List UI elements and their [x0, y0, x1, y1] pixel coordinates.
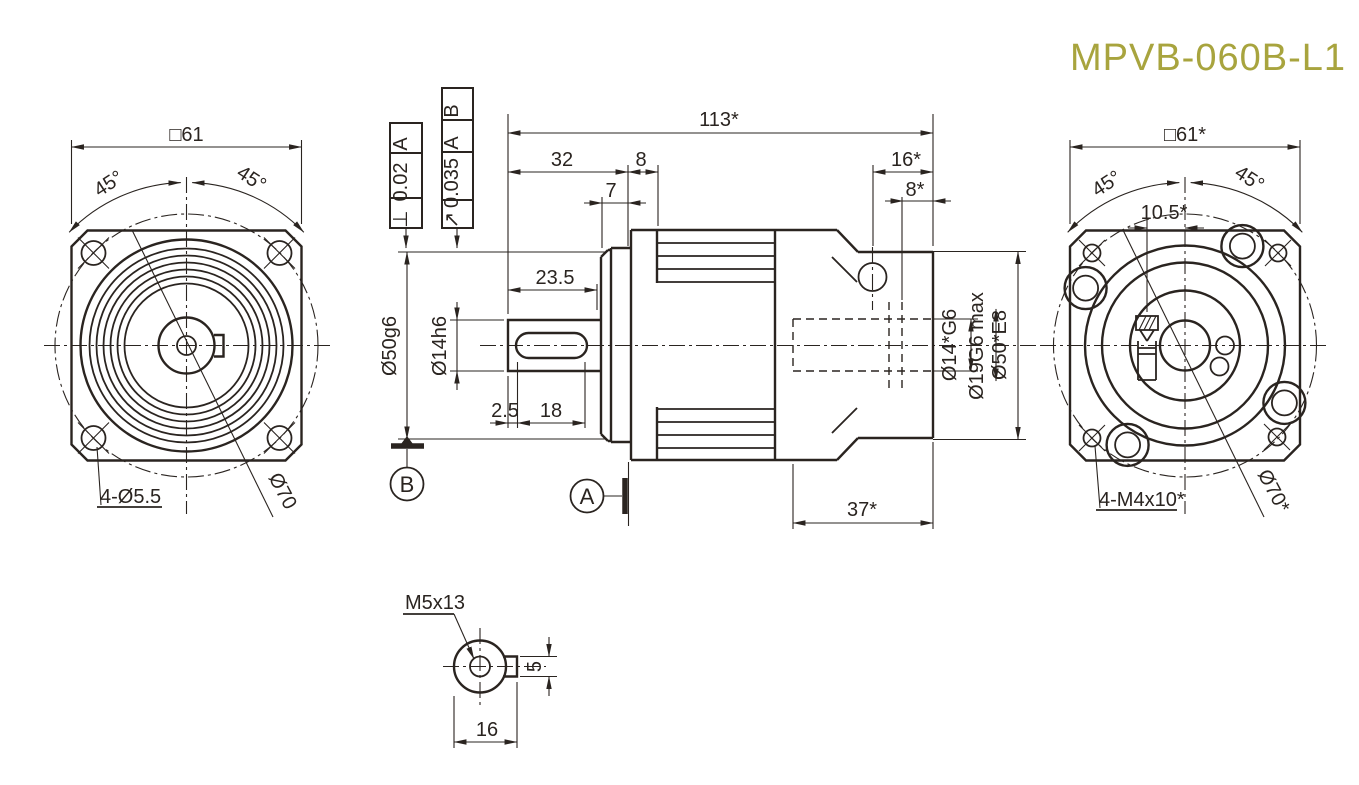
side-flange-step-label: 8 — [635, 149, 646, 171]
side-dim-shaft-length: 32 8 — [508, 149, 658, 246]
side-input-recess-label: Ø50*E8 — [989, 310, 1011, 380]
detail-tab-dimension: 5 — [520, 637, 557, 696]
side-dim-pilot-depth: 7 — [584, 180, 646, 248]
front-holes-callout: 4-Ø5.5 — [97, 447, 162, 508]
runout-datum2-label: B — [441, 104, 463, 117]
front-view-centerlines — [44, 177, 330, 514]
detail-tab-height-label: 5 — [524, 661, 546, 672]
side-shaft-dia-label: Ø14h6 — [429, 316, 451, 376]
front-holes-label: 4-Ø5.5 — [100, 486, 161, 508]
side-input-bore-max-label: Ø19G6 max — [966, 292, 988, 400]
perpendicularity-icon: ⊥ — [390, 210, 412, 227]
runout-datum1-label: A — [441, 136, 463, 150]
front-square-dim-label: □61 — [169, 124, 203, 146]
side-input-bore-label: Ø14*G6 — [939, 309, 961, 381]
rear-view: □61* 45° 45° 10.5* Ø70* 4-M4x10* — [1040, 124, 1330, 517]
perpendicularity-datum-label: A — [390, 137, 412, 151]
side-overall-label: 113* — [699, 109, 739, 131]
side-dim-rear-length: 37* — [793, 442, 933, 529]
detail-thread-callout: M5x13 — [403, 592, 474, 659]
rear-clamp-offset-label: 10.5* — [1141, 202, 1188, 224]
side-shaft-length-label: 32 — [551, 149, 573, 171]
side-shaft-usable-label: 23.5 — [536, 267, 575, 289]
side-view-outline — [508, 197, 933, 460]
detail-view: M5x13 16 5 — [403, 592, 557, 748]
front-view: □61 45° 45° Ø70 4-Ø5.5 — [44, 124, 330, 517]
side-key-length-label: 18 — [540, 400, 562, 422]
rear-square-dim-label: □61* — [1164, 124, 1206, 146]
rear-clamp-screw — [1136, 316, 1158, 380]
side-dim-input-bore: Ø14*G6 Ø19G6 max — [933, 292, 996, 400]
runout-tolerance-frame: B A 0.035 ↗ — [441, 88, 473, 248]
runout-icon: ↗ — [441, 212, 463, 229]
side-key-offset-label: 2.5 — [491, 400, 519, 422]
runout-value-label: 0.035 — [441, 158, 463, 208]
detail-thread-label: M5x13 — [405, 592, 465, 614]
rear-bolt-circle-label: Ø70* — [1253, 466, 1294, 517]
side-pilot-dia-label: Ø50g6 — [379, 316, 401, 376]
detail-width-label: 16 — [476, 719, 498, 741]
drawing-sheet: MPVB-060B-L1 — [0, 0, 1359, 785]
side-input-depth-label: 16* — [891, 149, 921, 171]
perpendicularity-tolerance-frame: A 0.02 ⊥ — [390, 123, 422, 248]
datum-a-label: A — [580, 484, 595, 509]
side-rear-length-label: 37* — [847, 499, 877, 521]
side-pilot-depth-label: 7 — [605, 180, 616, 202]
side-view: 113* 32 8 7 16* 8* 23.5 — [379, 88, 1040, 529]
datum-b-label: B — [400, 472, 415, 497]
side-hidden-lines — [793, 302, 933, 392]
perpendicularity-value-label: 0.02 — [390, 163, 412, 202]
gearbox-drawing: MPVB-060B-L1 — [0, 0, 1359, 785]
rear-bolt-circle-dimension: Ø70* — [1123, 230, 1294, 517]
drawing-title: MPVB-060B-L1 — [1070, 37, 1346, 79]
front-bolt-circle-label: Ø70 — [264, 469, 301, 513]
side-dim-input-depth: 16* 8* — [873, 149, 951, 246]
datum-a-flag: A — [571, 462, 629, 526]
side-dim-shaft-usable: 23.5 — [508, 267, 597, 310]
rear-holes-label: 4-M4x10* — [1099, 489, 1185, 511]
datum-b-flag: B — [391, 436, 425, 501]
side-input-pilot-depth-label: 8* — [906, 179, 925, 201]
front-angle-dimensions: 45° 45° — [69, 162, 304, 233]
